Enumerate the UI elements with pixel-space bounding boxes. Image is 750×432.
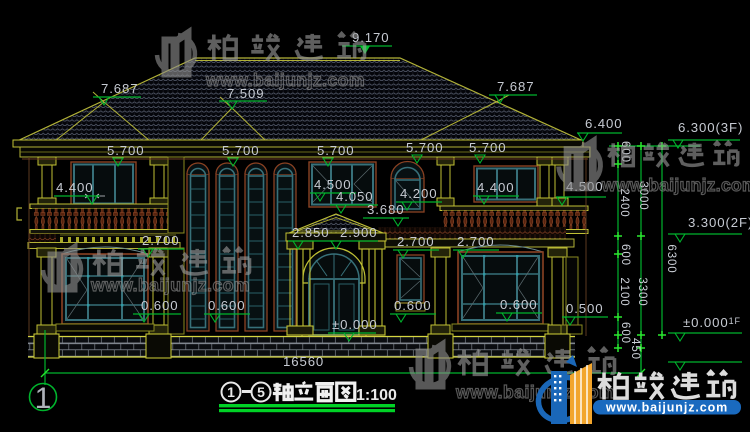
svg-text:4.200: 4.200: [400, 186, 438, 201]
svg-text:2100: 2100: [618, 277, 630, 306]
svg-text:3300: 3300: [636, 277, 648, 306]
svg-text:4.400: 4.400: [477, 180, 515, 195]
svg-text:5.700: 5.700: [317, 143, 355, 158]
svg-text:www.baijunjz.com: www.baijunjz.com: [90, 275, 250, 295]
svg-text:1: 1: [35, 382, 52, 415]
svg-text:0.600: 0.600: [141, 298, 179, 313]
svg-text:450: 450: [629, 338, 641, 360]
svg-text:2.700: 2.700: [397, 234, 435, 249]
svg-text:5.700: 5.700: [107, 143, 145, 158]
svg-text:0.600: 0.600: [394, 298, 432, 313]
svg-text:2.900: 2.900: [340, 225, 378, 240]
svg-text:2.700: 2.700: [142, 233, 180, 248]
svg-text:±0.000: ±0.000: [332, 317, 378, 332]
svg-text:5.700: 5.700: [222, 143, 260, 158]
svg-text:4.400: 4.400: [56, 180, 94, 195]
svg-text:6300: 6300: [665, 244, 677, 273]
svg-text:7.687: 7.687: [497, 79, 535, 94]
svg-text:0.500: 0.500: [566, 301, 604, 316]
svg-text:2.850: 2.850: [292, 225, 330, 240]
svg-text:www.baijunjz.com: www.baijunjz.com: [205, 70, 365, 90]
svg-text:600: 600: [619, 244, 631, 266]
svg-text:www.baijunjz.com: www.baijunjz.com: [605, 401, 728, 415]
svg-text:6.300(3F): 6.300(3F): [678, 120, 743, 135]
svg-text:1: 1: [227, 384, 235, 400]
svg-text:1:100: 1:100: [356, 387, 397, 404]
svg-text:3.680: 3.680: [367, 202, 405, 217]
svg-text:5.700: 5.700: [469, 140, 507, 155]
svg-text:5: 5: [257, 384, 265, 400]
svg-text:3.300(2F): 3.300(2F): [688, 215, 750, 230]
svg-text:6.400: 6.400: [585, 116, 623, 131]
svg-text:2.700: 2.700: [457, 234, 495, 249]
svg-text:16560: 16560: [283, 354, 324, 369]
svg-text:0.600: 0.600: [208, 298, 246, 313]
svg-text:5.700: 5.700: [406, 140, 444, 155]
svg-text:www.baijunjz.com: www.baijunjz.com: [601, 175, 750, 195]
svg-text:0.600: 0.600: [500, 297, 538, 312]
svg-text:7.687: 7.687: [101, 81, 139, 96]
